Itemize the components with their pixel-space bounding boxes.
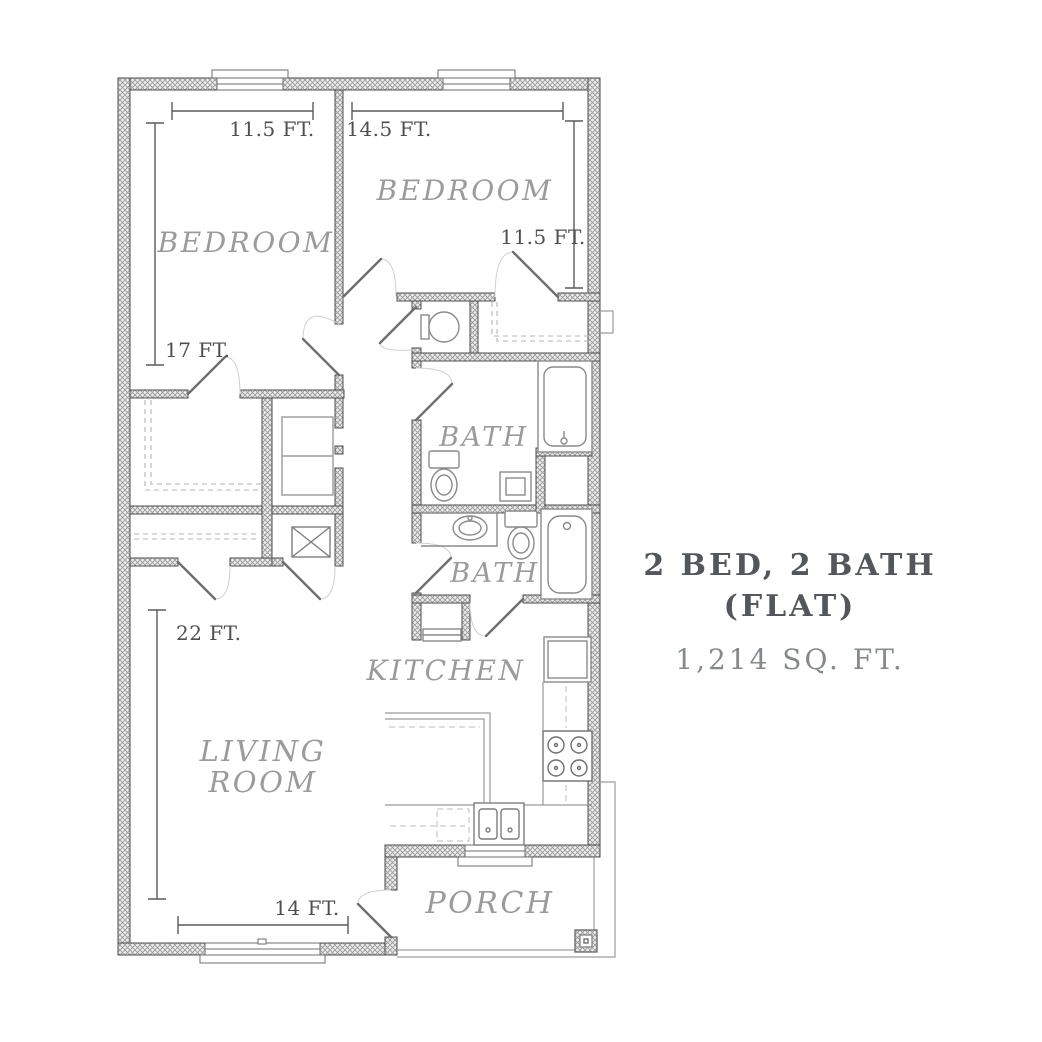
room-label-living-room-line1: LIVING bbox=[199, 734, 327, 768]
window bbox=[212, 70, 288, 90]
utility-bump bbox=[600, 311, 613, 333]
toilet bbox=[429, 451, 459, 501]
wall-bedroom-right-bottom bbox=[558, 293, 600, 301]
door-leaf bbox=[344, 259, 381, 296]
bedroom-right-closet-shelf bbox=[497, 302, 590, 341]
door-leaf bbox=[416, 384, 452, 420]
dimension-label: 11.5 FT. bbox=[500, 225, 586, 249]
dimension-living-room-depth bbox=[148, 610, 166, 899]
dimension-bedroom-right-depth bbox=[565, 121, 583, 288]
floor-plan-drawing: 11.5 FT. 14.5 FT. 11.5 FT. 17 FT. 22 FT.… bbox=[0, 0, 1042, 1042]
wall-hall-right bbox=[412, 420, 421, 543]
door-leaf bbox=[513, 252, 558, 297]
plan-info-panel: 2 BED, 2 BATH (FLAT) 1,214 SQ. FT. bbox=[640, 546, 940, 676]
plan-title-line1: 2 BED, 2 BATH bbox=[640, 546, 940, 587]
dimension-label: 14 FT. bbox=[274, 896, 339, 920]
refrigerator bbox=[544, 637, 591, 682]
door-swing-arc bbox=[320, 566, 335, 599]
wall-pantry-right bbox=[462, 603, 470, 640]
floor-plan-page: 11.5 FT. 14.5 FT. 11.5 FT. 17 FT. 22 FT.… bbox=[0, 0, 1042, 1042]
wall-wc-closet-divider bbox=[470, 301, 478, 357]
plan-title-line2: (FLAT) bbox=[640, 587, 940, 628]
wall-bedroom-right-bottom bbox=[397, 293, 495, 301]
shower-head-icon bbox=[561, 438, 567, 444]
door-swing-arc bbox=[380, 343, 416, 350]
door-leaf bbox=[416, 558, 451, 593]
wall-bedroom-divider bbox=[335, 468, 343, 566]
stove bbox=[543, 731, 592, 781]
walkin-closet-shelf bbox=[145, 400, 262, 490]
wall-top bbox=[283, 78, 443, 90]
walkin-closet-shelf bbox=[151, 400, 262, 484]
window bbox=[438, 70, 515, 90]
room-label-bedroom-left: BEDROOM bbox=[157, 226, 335, 259]
wall-bedroom-divider bbox=[335, 90, 343, 324]
wall-hall-right bbox=[412, 361, 421, 368]
door-swing-arc bbox=[215, 566, 230, 599]
washer-dryer bbox=[292, 527, 330, 557]
wall-bottom bbox=[118, 943, 205, 955]
wall-bath-upper-top bbox=[412, 353, 600, 361]
door-swing-arc bbox=[495, 252, 513, 297]
wall-linen bbox=[536, 456, 545, 513]
door-leaf bbox=[380, 307, 416, 343]
wall-top bbox=[118, 78, 217, 90]
porch-post bbox=[575, 930, 597, 952]
wall-laundry-bottom bbox=[130, 558, 178, 566]
room-label-bath-lower: BATH bbox=[449, 558, 539, 589]
dimension-label: 22 FT. bbox=[176, 621, 241, 645]
wall-left bbox=[118, 78, 130, 955]
dimension-label: 11.5 FT. bbox=[229, 117, 315, 141]
door-swing-arc bbox=[416, 543, 451, 558]
wall-laundry-top bbox=[130, 506, 343, 514]
wall-top bbox=[510, 78, 600, 90]
room-label-bedroom-right: BEDROOM bbox=[376, 174, 554, 207]
door-swing-arc bbox=[381, 259, 396, 296]
wall-bedroom-divider bbox=[335, 446, 343, 454]
door-swing-arc bbox=[225, 357, 240, 394]
door-leaf bbox=[486, 599, 523, 636]
kitchen-sink bbox=[474, 803, 524, 845]
door-leaf bbox=[178, 562, 215, 599]
door-leaf bbox=[303, 339, 339, 375]
wall-bedroom-left-bottom bbox=[130, 390, 188, 398]
wall-kitchen-bottom bbox=[385, 845, 465, 857]
wall-kitchen-bottom bbox=[525, 845, 600, 857]
wardrobe bbox=[282, 417, 333, 495]
bathtub bbox=[541, 509, 592, 599]
vanity-sink bbox=[421, 513, 497, 546]
wall-laundry-bottom bbox=[272, 558, 283, 566]
room-label-kitchen: KITCHEN bbox=[366, 654, 526, 687]
door-swing-arc bbox=[303, 316, 339, 339]
laundry-shelf bbox=[134, 534, 258, 539]
wall-laundry-bottom bbox=[230, 558, 272, 566]
bedroom-right-closet-shelf bbox=[492, 302, 590, 336]
plan-area: 1,214 SQ. FT. bbox=[640, 643, 940, 676]
window bbox=[200, 939, 325, 963]
door-swing-arc bbox=[358, 890, 391, 904]
wall-bedroom-divider bbox=[335, 375, 343, 428]
wall-porch-left bbox=[385, 937, 397, 955]
wall-bath-lower-bottom bbox=[412, 595, 470, 603]
door-swing-arc bbox=[416, 368, 452, 384]
door-swing-arc bbox=[470, 603, 486, 636]
dimension-label: 17 FT. bbox=[165, 338, 230, 362]
door-leaf bbox=[188, 357, 225, 394]
room-label-bath-upper: BATH bbox=[438, 422, 528, 453]
window bbox=[458, 845, 532, 866]
toilet bbox=[421, 312, 459, 342]
toilet bbox=[505, 511, 537, 559]
pantry-shelves bbox=[423, 629, 461, 641]
wall-wardrobe-divider bbox=[262, 398, 272, 566]
cabinet bbox=[500, 472, 531, 501]
door-leaf bbox=[358, 904, 391, 937]
shower bbox=[538, 361, 592, 452]
door-leaf bbox=[283, 562, 320, 599]
dimension-label: 14.5 FT. bbox=[346, 117, 432, 141]
wall-bedroom-left-bottom bbox=[240, 390, 344, 398]
room-label-living-room-line2: ROOM bbox=[207, 765, 317, 799]
wall-porch-left bbox=[385, 857, 397, 890]
room-label-porch: PORCH bbox=[425, 886, 555, 921]
